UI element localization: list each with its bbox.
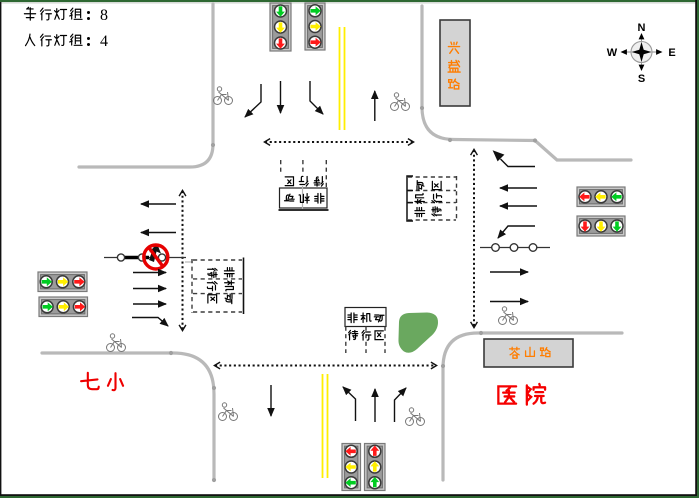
svg-text:W: W (607, 47, 618, 59)
svg-text:E: E (668, 47, 675, 59)
svg-text:4: 4 (100, 33, 108, 50)
svg-text:S: S (638, 73, 645, 85)
svg-text:8: 8 (100, 7, 108, 24)
svg-text:N: N (638, 22, 646, 34)
